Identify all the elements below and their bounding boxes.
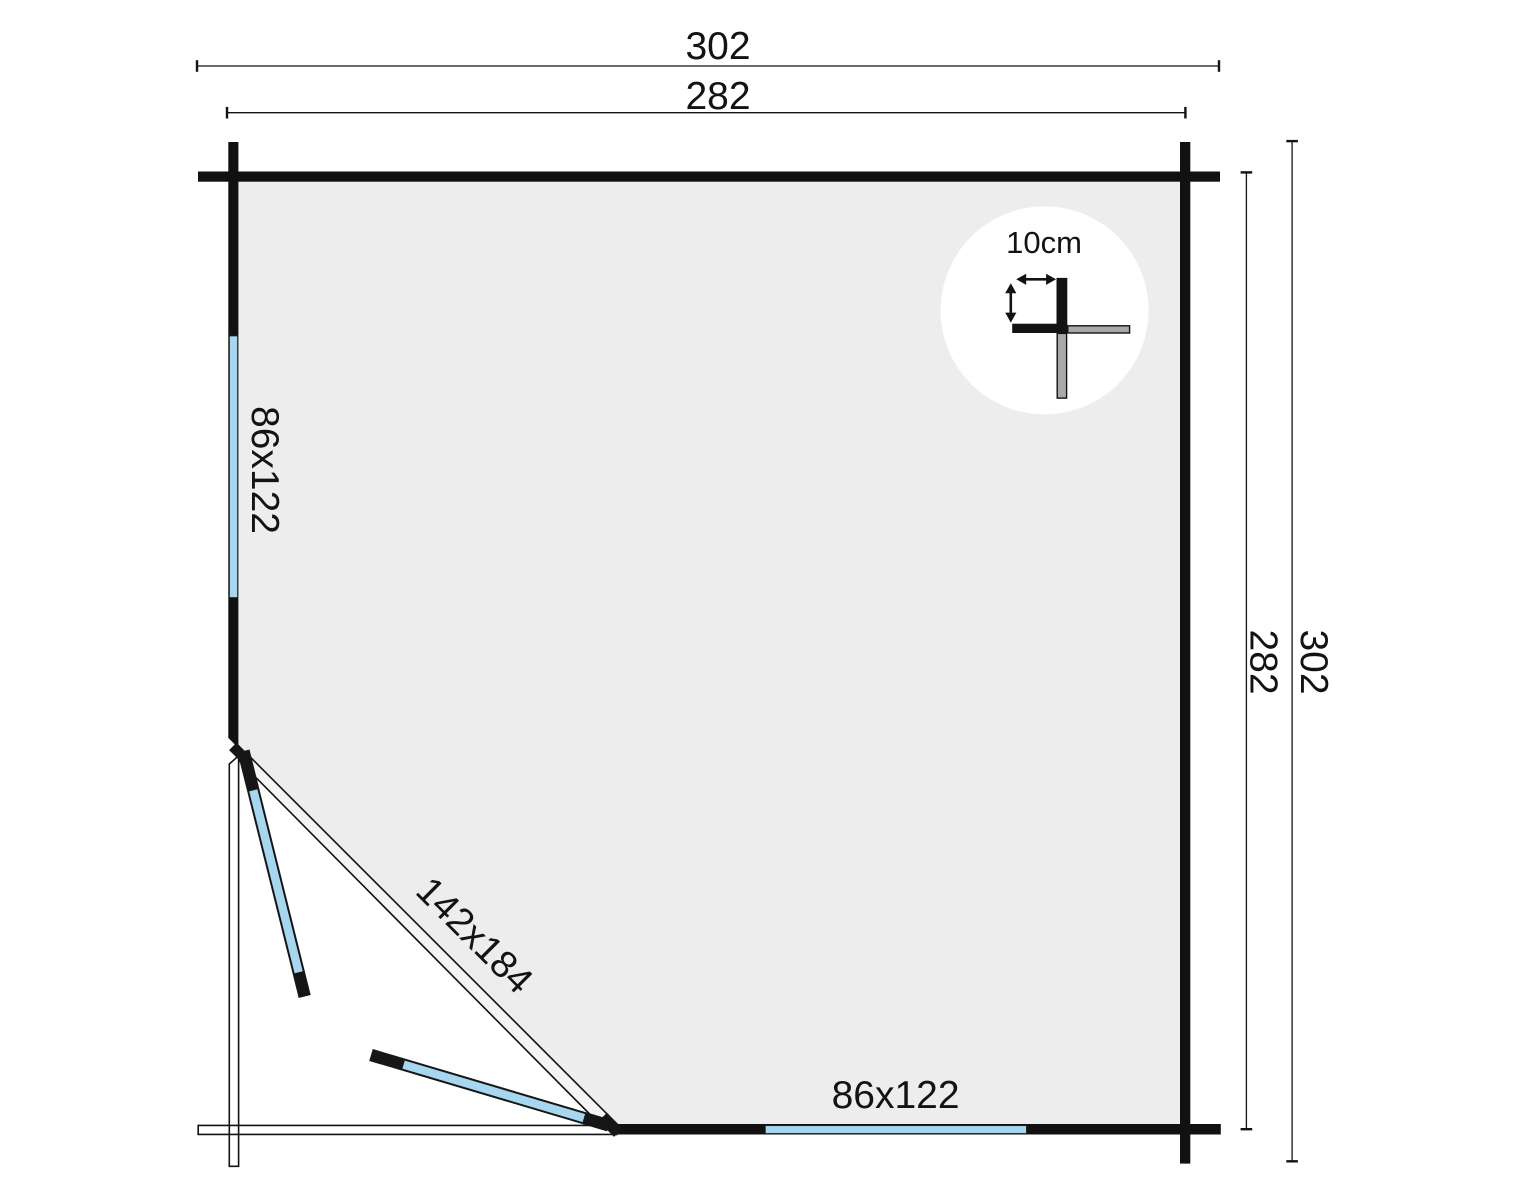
svg-text:302: 302 xyxy=(1292,629,1335,694)
svg-text:302: 302 xyxy=(685,25,750,68)
svg-text:282: 282 xyxy=(1242,629,1285,694)
svg-text:86x122: 86x122 xyxy=(832,1074,960,1117)
svg-text:86x122: 86x122 xyxy=(243,406,286,534)
svg-text:282: 282 xyxy=(685,75,750,118)
svg-text:10cm: 10cm xyxy=(1006,225,1082,260)
